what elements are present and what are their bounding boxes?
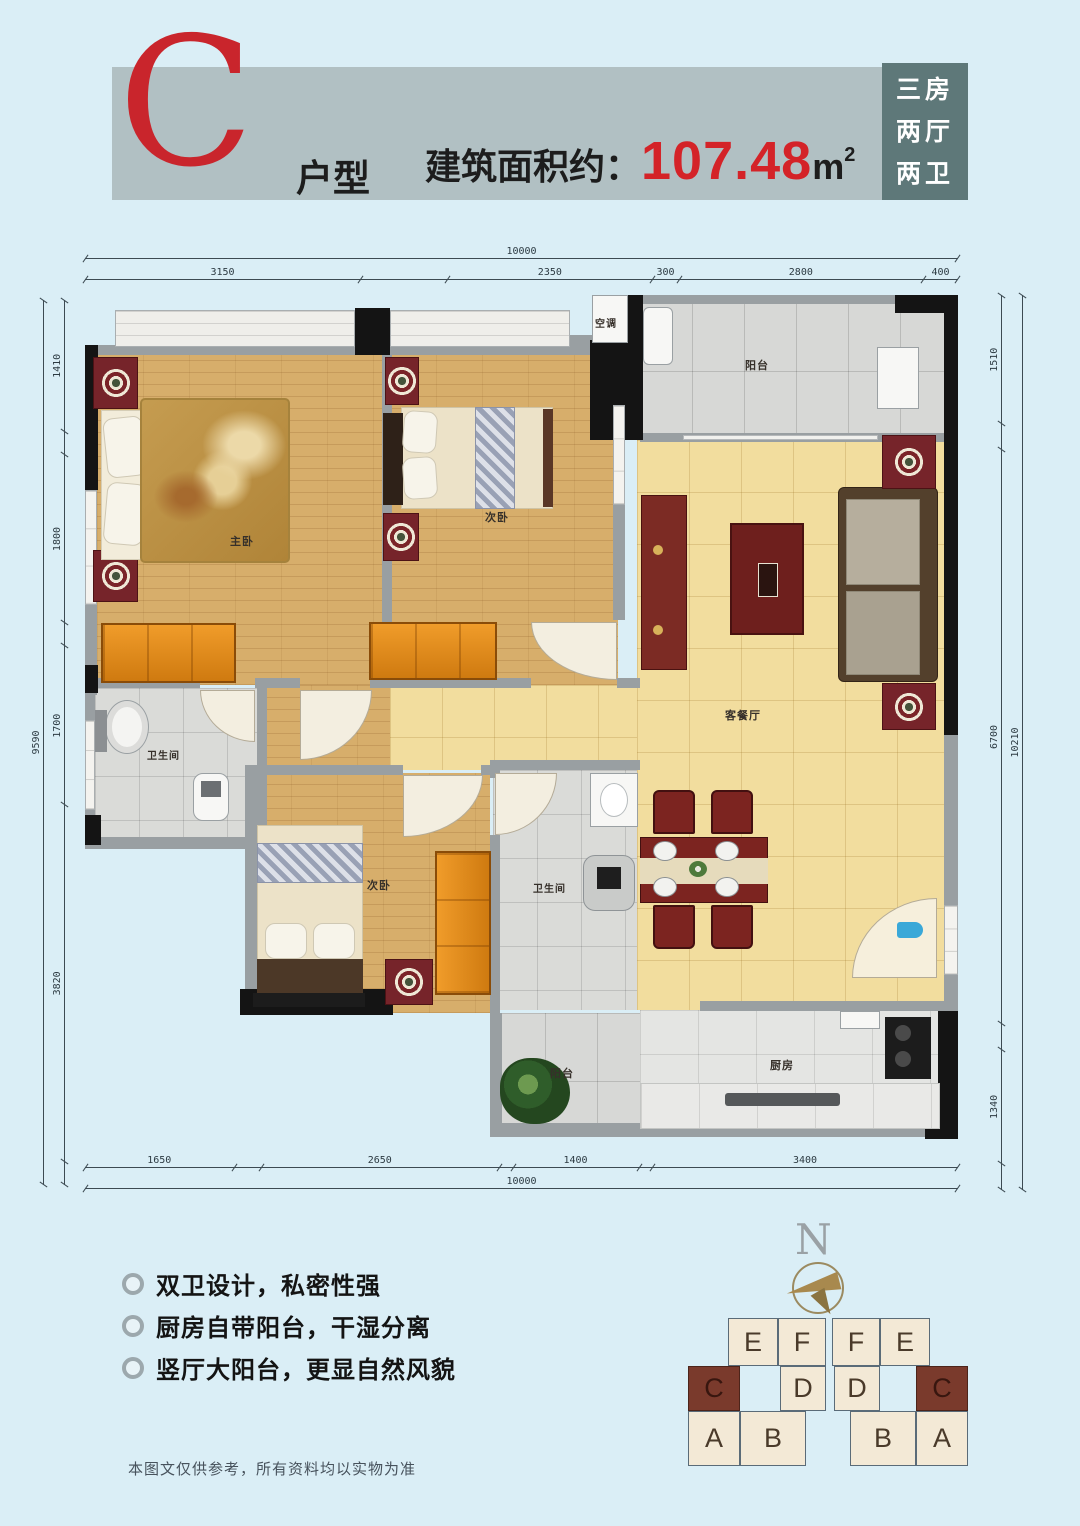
plate [715,877,739,897]
dimension-label: 9590 [31,300,42,1185]
pillow [402,410,439,454]
dimension-row: 134067001510 [986,295,1007,1190]
bathroom1-label: 卫生间 [147,747,180,762]
dimension-row: 9590 [28,300,49,1185]
dimension-segment: 9590 [28,300,49,1185]
dimension-segment: 1650 [85,1152,234,1173]
balcony-cabinet [877,347,919,409]
dimension-right: 13406700151010210 [986,295,1028,1190]
tag-line-1: 三房 [896,70,954,110]
living-label: 客餐厅 [725,707,761,723]
unit-type-letter: C [118,8,254,198]
unit-cell: B [850,1411,916,1466]
compass-needle-tail [811,1288,838,1319]
unit-cell: E [728,1318,778,1366]
dimension-row: 10000 [85,243,958,264]
bed2-footboard [543,409,553,507]
wall [640,295,898,304]
wall [490,835,500,1013]
dimension-segment: 10210 [1007,295,1028,1190]
feature-text: 双卫设计，私密性强 [156,1266,381,1301]
ac-label: 空调 [595,315,617,330]
dimension-segment: 10000 [85,243,958,264]
feature-text: 厨房自带阳台，干湿分离 [156,1308,431,1343]
unit-config-tag: 三房 两厅 两卫 [882,63,968,200]
unit-cell: A [916,1411,968,1466]
unit-cell: F [832,1318,880,1366]
dimension-segment: 6700 [986,450,1007,1024]
sink-basin [600,783,628,817]
dining-chair [653,790,695,834]
area-value: 107.48 [641,130,812,192]
dimension-segment: 2350 [447,264,652,285]
dimension-row: 10210 [1007,295,1028,1190]
kitchen-label: 厨房 [770,1057,794,1073]
dimension-label: 3400 [652,1155,958,1166]
dimension-label: 3820 [52,805,63,1162]
centerpiece [689,861,707,877]
unit-cell: A [688,1411,740,1466]
bed-master-quilt [140,398,290,563]
dimension-label: 1340 [989,1050,1000,1165]
dimension-label: 2650 [261,1155,500,1166]
dimension-segment [49,623,70,646]
bay-window [115,310,355,347]
dining-chair [711,790,753,834]
dimension-label: 10000 [85,1176,958,1187]
dimension-segment [49,432,70,455]
dimension-bottom: 165026501400340010000 [85,1152,958,1194]
window [85,720,95,810]
kitchen-counter [640,1083,940,1129]
dimension-segment: 1510 [986,295,1007,424]
dimension-segment [986,424,1007,450]
balcony-bottom-label: 阳台 [550,1065,574,1081]
dimension-segment: 1800 [49,455,70,623]
feature-item: 双卫设计，私密性强 [122,1266,381,1301]
dimension-label: 6700 [989,450,1000,1024]
burner [895,1025,911,1041]
nightstand [385,959,433,1005]
plate [715,841,739,861]
wall [617,678,640,688]
panel [95,710,107,752]
wall-black [938,1011,958,1133]
dimension-top: 10000315023503002800400 [85,243,958,285]
dimension-label: 1400 [513,1155,639,1166]
washing-machine [643,307,673,365]
kitchen-sink [840,1011,880,1029]
bay-window [390,310,570,347]
bed3-headboard [253,993,365,1007]
bedroom3-label: 次卧 [367,877,391,893]
tv-decor [653,625,663,635]
washer-panel [597,867,621,889]
bed3-blanket [257,959,363,995]
wall-black [85,665,98,693]
unit-cell-highlighted: C [916,1366,968,1411]
dimension-segment [234,1152,261,1173]
tv-decor [653,545,663,555]
wall-black [85,815,101,845]
dimension-row: 10000 [85,1173,958,1194]
wall [490,760,640,770]
window [613,405,625,505]
dimension-segment: 300 [652,264,678,285]
wall-black [944,295,958,735]
dimension-segment: 2650 [261,1152,500,1173]
dimension-segment [986,1164,1007,1190]
dimension-segment [360,264,447,285]
dimension-segment: 3820 [49,805,70,1162]
feature-text: 竖厅大阳台，更显自然风貌 [156,1350,456,1385]
kitchen-hood [725,1093,840,1106]
dining-chair [653,905,695,949]
side-table [882,435,936,489]
wall [700,1001,950,1011]
dimension-label: 1700 [52,646,63,805]
master-label: 主卧 [230,533,254,549]
bed2-runner [475,407,515,509]
tv-cabinet [641,495,687,670]
nightstand [383,513,419,561]
feature-item: 竖厅大阳台，更显自然风貌 [122,1350,456,1385]
bedroom2-label: 次卧 [485,509,509,525]
dimension-segment: 1340 [986,1050,1007,1165]
dimension-segment [986,1024,1007,1050]
unit-type-suffix: 户型 [296,148,370,202]
dimension-label: 10000 [85,246,958,257]
coffee-table-tray [758,563,778,597]
unit-cell: B [740,1411,806,1466]
dimension-label: 400 [923,267,958,278]
dining-chair [711,905,753,949]
dimension-row: 1650265014003400 [85,1152,958,1173]
area-unit: m [812,146,844,188]
pillow [313,923,355,959]
washer-round [105,700,149,754]
plate [653,877,677,897]
dimension-segment: 3400 [652,1152,958,1173]
bullet-icon [122,1315,144,1337]
dimension-label: 2350 [447,267,652,278]
dimension-segment: 2800 [679,264,923,285]
wall-black [627,295,643,345]
disclaimer-text: 本图文仅供参考，所有资料均以实物为准 [128,1458,416,1479]
pillow [265,923,307,959]
nightstand [93,357,138,409]
wardrobe-master [101,623,236,683]
wall [490,1013,502,1125]
bullet-icon [122,1273,144,1295]
dimension-segment: 400 [923,264,958,285]
floorplan: 空调 主卧 次卧 次卧 [85,295,958,1145]
north-label: N [795,1215,832,1264]
dimension-label: 1510 [989,295,1000,424]
dimension-segment: 1400 [513,1152,639,1173]
dimension-segment: 1410 [49,300,70,432]
wall [245,773,257,995]
area-prefix: 建筑面积约： [425,138,641,190]
wall [245,765,403,775]
nightstand [385,357,419,405]
pillow [402,456,439,500]
bullet-icon [122,1357,144,1379]
dimension-label: 10210 [1010,295,1021,1190]
unit-cell: D [780,1366,826,1411]
plate [653,841,677,861]
dimension-label: 3150 [85,267,360,278]
burner [895,1051,911,1067]
floorplan-flyer: 三房 两厅 两卫 C 户型 建筑面积约： 107.48 m 2 10000315… [0,0,1080,1526]
wall-black [355,308,390,355]
unit-cell: F [778,1318,826,1366]
building-keyplan: E F F E C D D C A B B A [688,1318,968,1470]
dimension-segment: 10000 [85,1173,958,1194]
dimension-label: 1800 [52,455,63,623]
dimension-label: 1650 [85,1155,234,1166]
balcony-top-label: 阳台 [745,357,769,373]
unit-cell: D [834,1366,880,1411]
dimension-row: 315023503002800400 [85,264,958,285]
dimension-label: 300 [652,267,678,278]
wall [944,735,958,905]
bed2-headboard [383,413,403,505]
dimension-segment [49,1162,70,1185]
hallway-tile-floor [390,685,640,770]
bed3-runner [257,843,363,883]
toilet-tank [201,781,221,797]
dimension-label: 1410 [52,300,63,432]
area-sup: 2 [844,144,855,167]
dimension-label: 2800 [679,267,923,278]
water-dispenser [897,922,923,938]
wall [85,837,267,849]
bathroom2-label: 卫生间 [533,880,566,895]
compass-icon [792,1262,844,1314]
dimension-left: 95903820170018001410 [28,300,70,1185]
sofa-cushion [846,499,920,585]
dimension-segment: 3150 [85,264,360,285]
balcony-slider [683,435,878,440]
wall [255,678,300,688]
feature-item: 厨房自带阳台，干湿分离 [122,1308,431,1343]
unit-cell-highlighted: C [688,1366,740,1411]
dimension-segment: 1700 [49,646,70,805]
unit-cell: E [880,1318,930,1366]
wardrobe-bedroom3 [435,851,491,995]
wardrobe-bedroom2 [369,622,497,680]
side-table [882,683,936,730]
window [944,905,958,975]
tag-line-3: 两卫 [896,154,954,194]
dimension-row: 3820170018001410 [49,300,70,1185]
area-line: 建筑面积约： 107.48 m 2 [425,130,855,192]
tag-line-2: 两厅 [896,112,954,152]
sofa-cushion [846,591,920,675]
